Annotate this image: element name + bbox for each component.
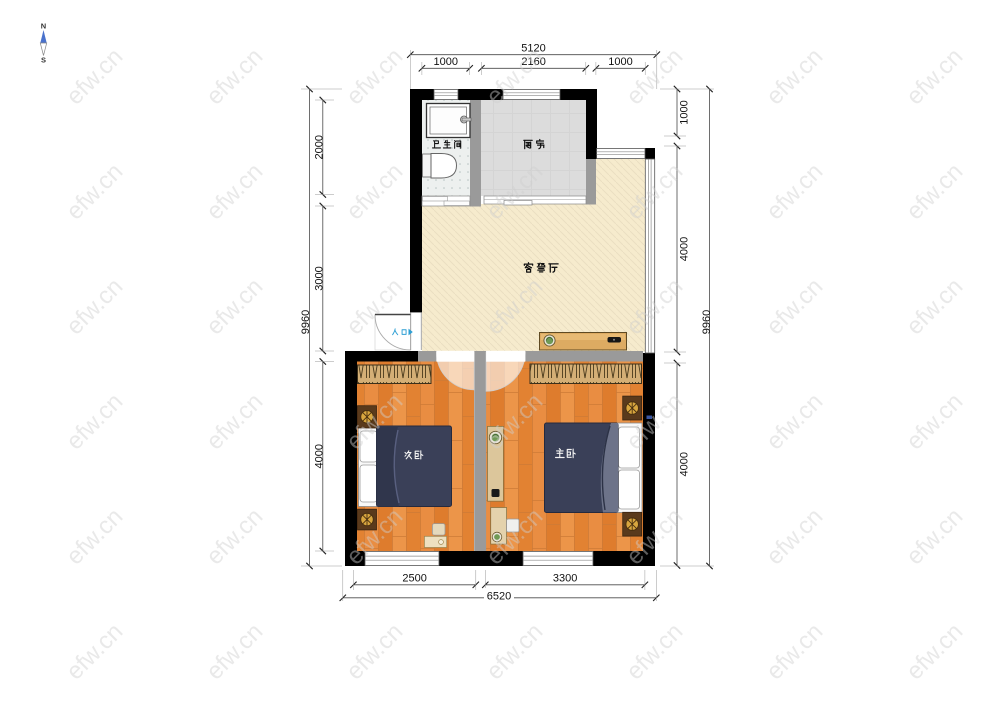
svg-text:4000: 4000 — [679, 452, 691, 476]
svg-text:4000: 4000 — [313, 444, 325, 468]
svg-text:1000: 1000 — [434, 56, 458, 68]
svg-text:2500: 2500 — [402, 573, 426, 585]
svg-text:3000: 3000 — [313, 266, 325, 290]
svg-text:3300: 3300 — [553, 573, 577, 585]
svg-text:N: N — [41, 22, 46, 31]
svg-text:9960: 9960 — [701, 310, 713, 334]
svg-text:1000: 1000 — [608, 56, 632, 68]
svg-text:6520: 6520 — [487, 591, 511, 603]
svg-text:4000: 4000 — [679, 237, 691, 261]
svg-text:9960: 9960 — [300, 310, 312, 334]
svg-text:1000: 1000 — [679, 100, 691, 124]
svg-text:S: S — [41, 56, 46, 65]
svg-text:2000: 2000 — [313, 135, 325, 159]
